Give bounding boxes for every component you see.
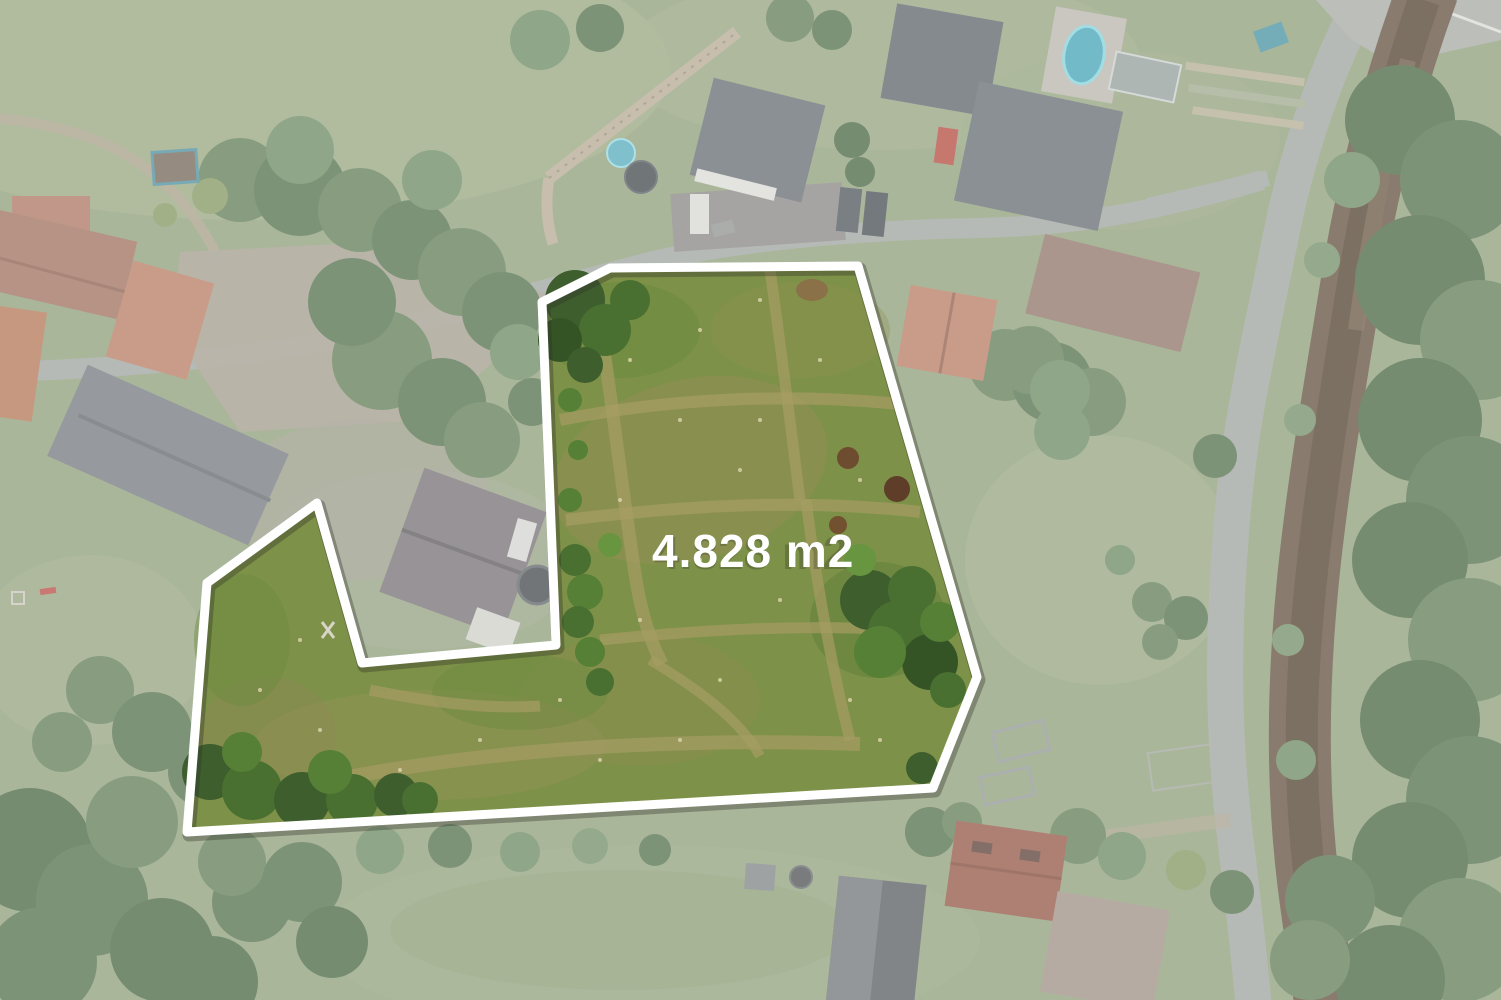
red-bush (837, 447, 859, 469)
area-label: 4.828 m2 4.828 m2 (652, 525, 854, 579)
dirt-pile (796, 279, 828, 301)
area-label-text: 4.828 m2 (652, 525, 854, 577)
red-bush (884, 476, 910, 502)
aerial-photo: 4.828 m2 4.828 m2 (0, 0, 1501, 1000)
aerial-photo-canvas: 4.828 m2 4.828 m2 (0, 0, 1501, 1000)
